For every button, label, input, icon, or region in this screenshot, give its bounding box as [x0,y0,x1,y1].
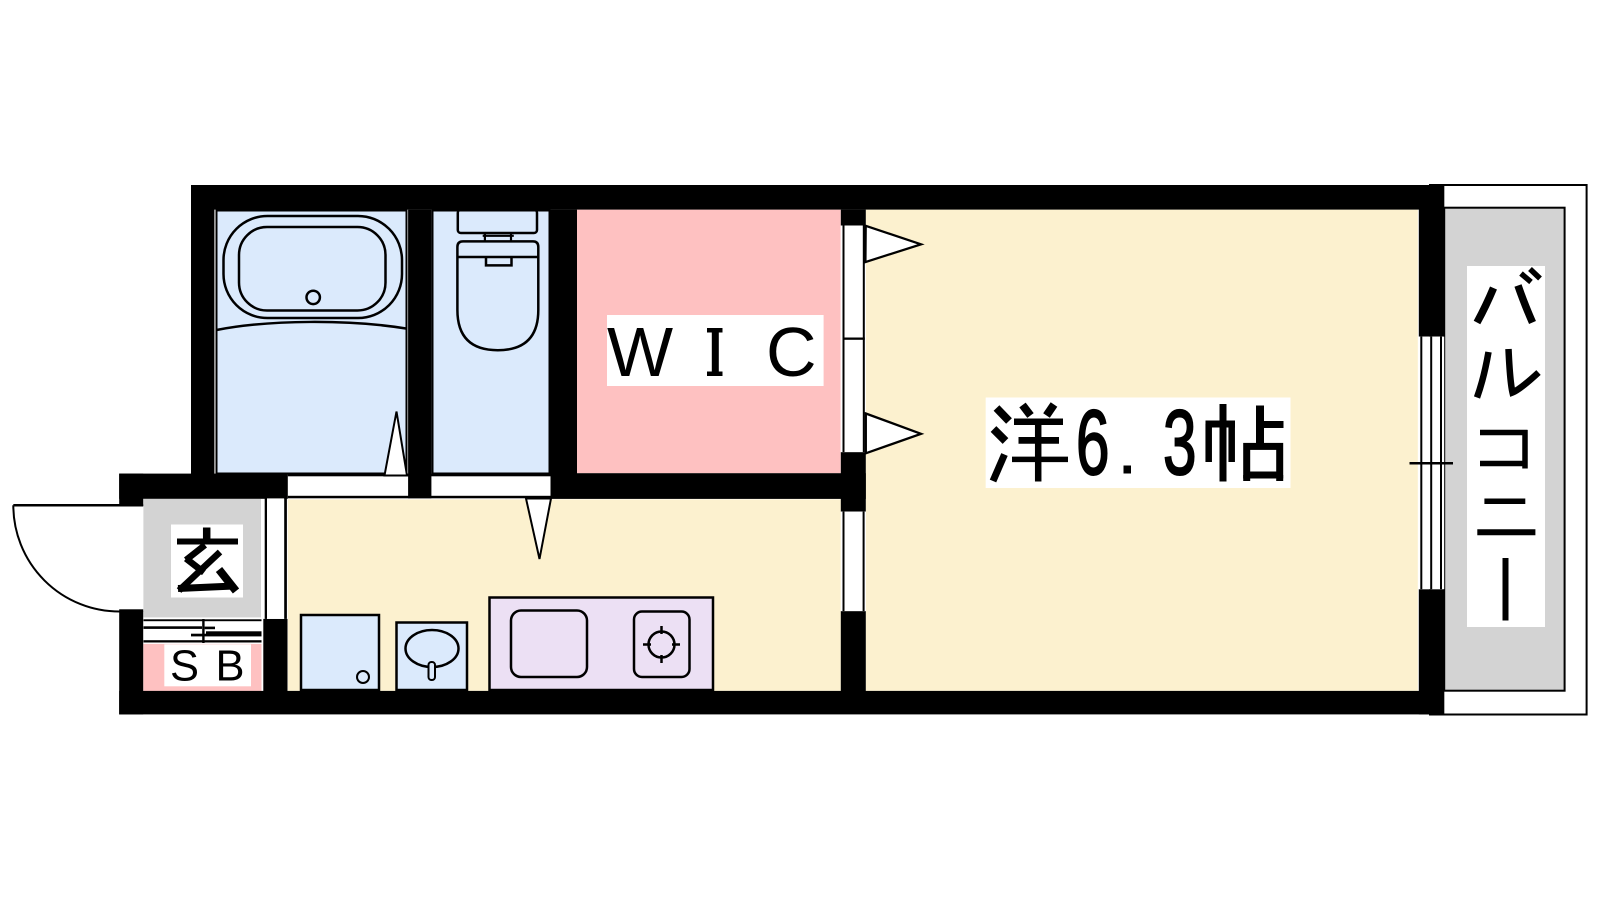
svg-text:6: 6 [1076,392,1110,494]
svg-text:S: S [170,643,199,691]
svg-text:B: B [216,643,245,691]
svg-text:W: W [607,313,673,391]
svg-text:C: C [766,313,817,391]
svg-text:3: 3 [1163,392,1197,494]
